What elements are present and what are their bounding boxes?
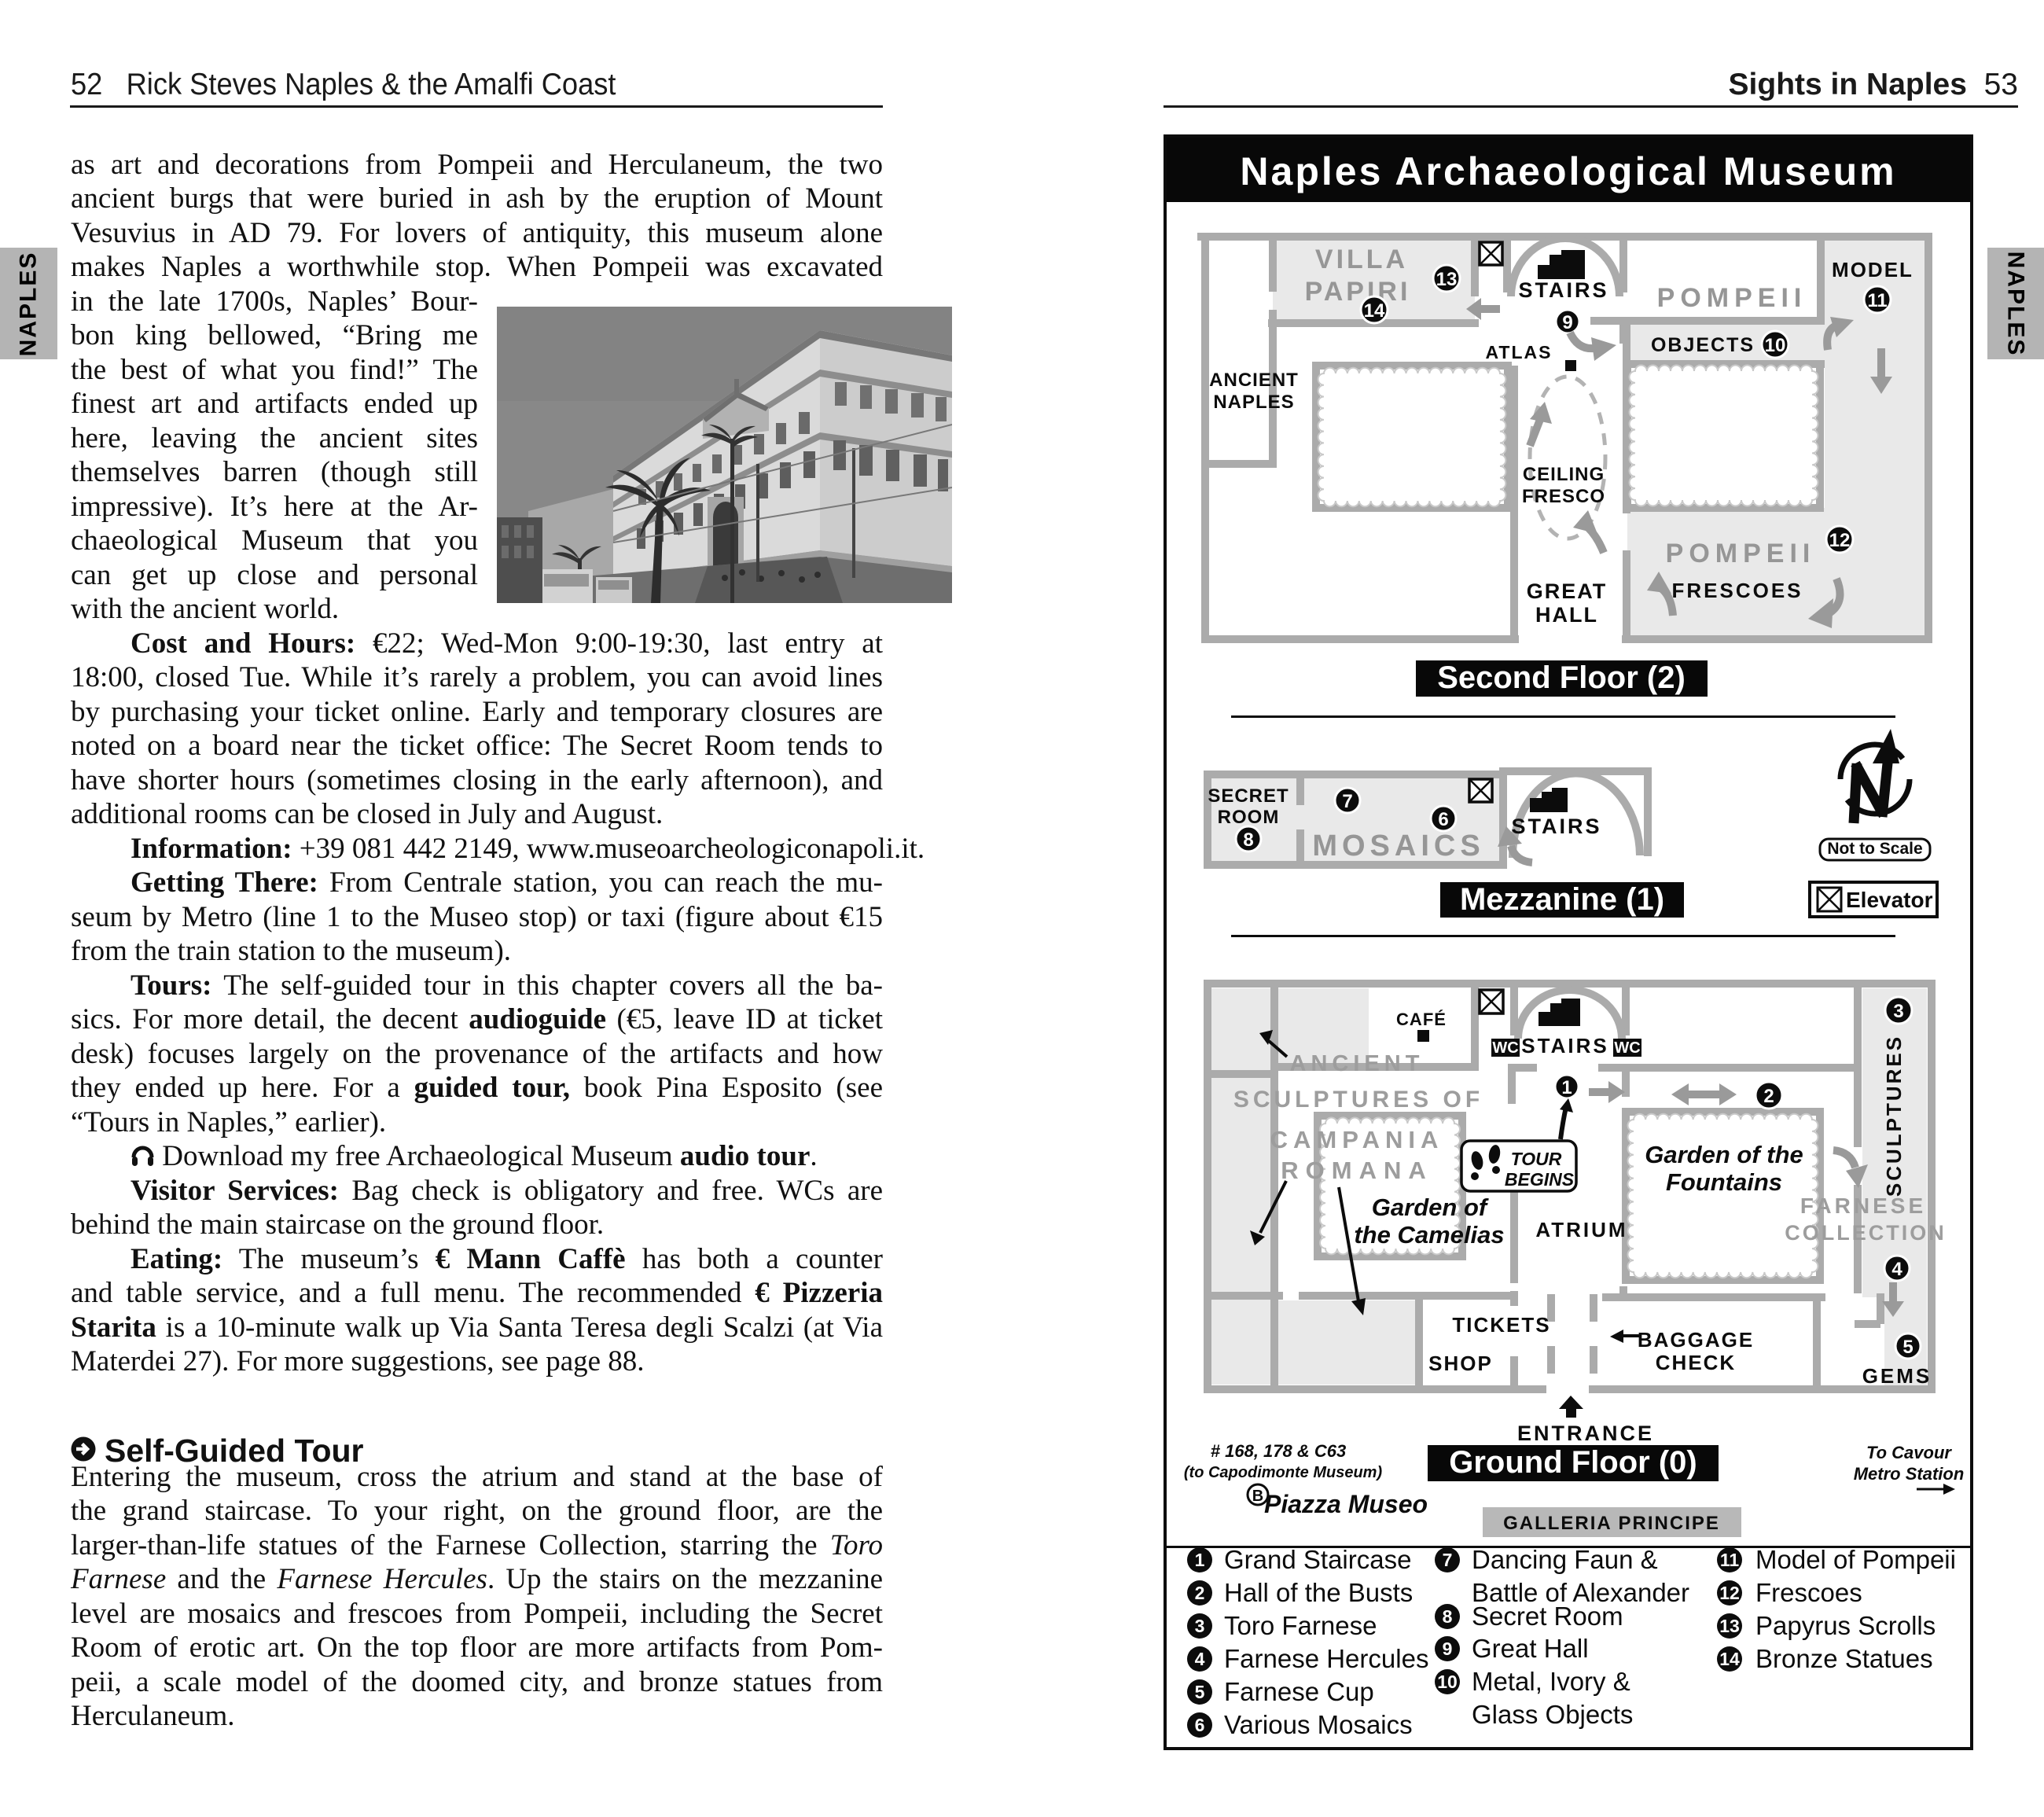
svg-text:MOSAICS: MOSAICS [1312,829,1484,863]
svg-text:CAMPANIA: CAMPANIA [1270,1126,1444,1153]
svg-text:BAGGAGE: BAGGAGE [1638,1328,1754,1352]
svg-text:ANCIENT: ANCIENT [1209,370,1299,391]
svg-text:ROOM: ROOM [1218,807,1280,828]
svg-text:POMPEII: POMPEII [1666,539,1816,568]
svg-text:5: 5 [1195,1682,1205,1702]
svg-text:12: 12 [1719,1583,1740,1603]
svg-text:GEMS: GEMS [1862,1364,1932,1388]
svg-text:POMPEII: POMPEII [1657,283,1807,313]
svg-text:SHOP: SHOP [1428,1352,1493,1375]
svg-text:CHECK: CHECK [1656,1351,1736,1374]
svg-text:STAIRS: STAIRS [1521,1034,1608,1057]
svg-text:Farnese Cup: Farnese Cup [1224,1677,1374,1706]
svg-text:Model of Pompeii: Model of Pompeii [1755,1545,1956,1574]
svg-text:Second Floor (2): Second Floor (2) [1437,660,1686,695]
svg-text:MODEL: MODEL [1832,258,1913,281]
svg-text:CAFÉ: CAFÉ [1396,1010,1447,1029]
svg-text:Bronze Statues: Bronze Statues [1755,1644,1933,1673]
svg-text:8: 8 [1243,829,1253,851]
svg-text:Secret Room: Secret Room [1472,1602,1623,1631]
svg-text:Metro Station: Metro Station [1854,1464,1965,1484]
svg-text:FRESCOES: FRESCOES [1671,579,1803,602]
svg-text:10: 10 [1765,335,1786,356]
svg-text:Glass Objects: Glass Objects [1472,1700,1633,1729]
svg-text:GREAT: GREAT [1527,579,1608,603]
svg-text:(to Capodimonte Museum): (to Capodimonte Museum) [1184,1464,1383,1481]
svg-text:8: 8 [1443,1606,1453,1627]
svg-text:4: 4 [1195,1649,1205,1669]
svg-text:Garden of the: Garden of the [1645,1141,1803,1168]
svg-text:WC: WC [1614,1039,1640,1057]
svg-text:ANCIENT: ANCIENT [1290,1051,1425,1076]
svg-text:1: 1 [1561,1077,1572,1098]
svg-text:6: 6 [1195,1715,1205,1735]
svg-text:OBJECTS: OBJECTS [1651,334,1755,356]
svg-text:Naples Archaeological Museum: Naples Archaeological Museum [1240,149,1896,193]
svg-text:NAPLES: NAPLES [1213,392,1294,413]
svg-text:Piazza Museo: Piazza Museo [1264,1490,1428,1518]
svg-text:ATLAS: ATLAS [1486,342,1553,362]
svg-text:Farnese Hercules: Farnese Hercules [1224,1644,1428,1673]
svg-text:14: 14 [1364,300,1385,322]
svg-text:STAIRS: STAIRS [1511,815,1601,838]
svg-text:Garden of: Garden of [1372,1194,1489,1221]
svg-text:11: 11 [1720,1550,1740,1570]
svg-text:SCULPTURES OF: SCULPTURES OF [1233,1087,1483,1113]
svg-text:Dancing Faun &: Dancing Faun & [1472,1545,1658,1574]
svg-text:CEILING: CEILING [1523,464,1605,485]
svg-text:Papyrus Scrolls: Papyrus Scrolls [1755,1611,1936,1640]
svg-text:9: 9 [1443,1639,1453,1659]
svg-text:Metal, Ivory &: Metal, Ivory & [1472,1667,1630,1696]
svg-text:5: 5 [1902,1337,1913,1358]
svg-text:Mezzanine (1): Mezzanine (1) [1460,882,1664,917]
svg-text:Toro Farnese: Toro Farnese [1224,1611,1377,1640]
svg-text:11: 11 [1867,290,1887,311]
svg-text:13: 13 [1719,1616,1740,1636]
svg-text:To Cavour: To Cavour [1866,1443,1952,1462]
svg-text:# 168, 178 & C63: # 168, 178 & C63 [1211,1441,1346,1461]
svg-text:9: 9 [1562,312,1572,333]
svg-text:BEGINS: BEGINS [1505,1169,1575,1190]
svg-text:10: 10 [1437,1672,1458,1692]
svg-text:FRESCO: FRESCO [1522,486,1605,507]
svg-text:14: 14 [1719,1649,1740,1669]
svg-text:SCULPTURES: SCULPTURES [1882,1035,1906,1197]
svg-text:Grand Staircase: Grand Staircase [1224,1545,1411,1574]
svg-text:12: 12 [1829,530,1851,551]
svg-text:TICKETS: TICKETS [1452,1313,1550,1337]
svg-text:Ground Floor (0): Ground Floor (0) [1449,1445,1697,1480]
svg-text:SECRET: SECRET [1208,785,1289,807]
svg-text:3: 3 [1893,1001,1903,1022]
svg-text:Not to Scale: Not to Scale [1827,840,1922,858]
svg-text:WC: WC [1492,1039,1518,1057]
svg-text:7: 7 [1342,791,1352,812]
svg-text:Fountains: Fountains [1666,1168,1782,1196]
svg-text:3: 3 [1195,1616,1205,1636]
svg-text:Hall of the Busts: Hall of the Busts [1224,1578,1413,1607]
svg-text:Elevator: Elevator [1846,888,1933,912]
svg-text:Various Mosaics: Various Mosaics [1224,1710,1413,1739]
svg-text:VILLA: VILLA [1315,245,1408,274]
svg-text:B: B [1252,1488,1263,1505]
svg-text:13: 13 [1436,269,1458,290]
svg-text:STAIRS: STAIRS [1518,278,1608,302]
svg-text:7: 7 [1443,1550,1453,1570]
svg-text:2: 2 [1195,1583,1205,1603]
svg-text:COLLECTION: COLLECTION [1785,1221,1947,1245]
svg-text:Great Hall: Great Hall [1472,1634,1589,1663]
svg-text:PAPIRI: PAPIRI [1305,277,1411,307]
svg-text:ROMANA: ROMANA [1281,1157,1433,1184]
svg-text:1: 1 [1195,1550,1205,1570]
svg-text:FARNESE: FARNESE [1800,1194,1926,1218]
svg-text:the Camelias: the Camelias [1354,1221,1504,1249]
svg-text:GALLERIA PRINCIPE: GALLERIA PRINCIPE [1503,1513,1720,1534]
svg-text:Frescoes: Frescoes [1755,1578,1862,1607]
svg-text:ATRIUM: ATRIUM [1535,1218,1627,1241]
svg-text:HALL: HALL [1535,603,1598,627]
svg-text:ENTRANCE: ENTRANCE [1517,1422,1654,1445]
svg-text:2: 2 [1763,1086,1774,1107]
svg-text:TOUR: TOUR [1511,1149,1562,1169]
svg-text:4: 4 [1891,1259,1902,1280]
svg-text:6: 6 [1438,809,1448,830]
